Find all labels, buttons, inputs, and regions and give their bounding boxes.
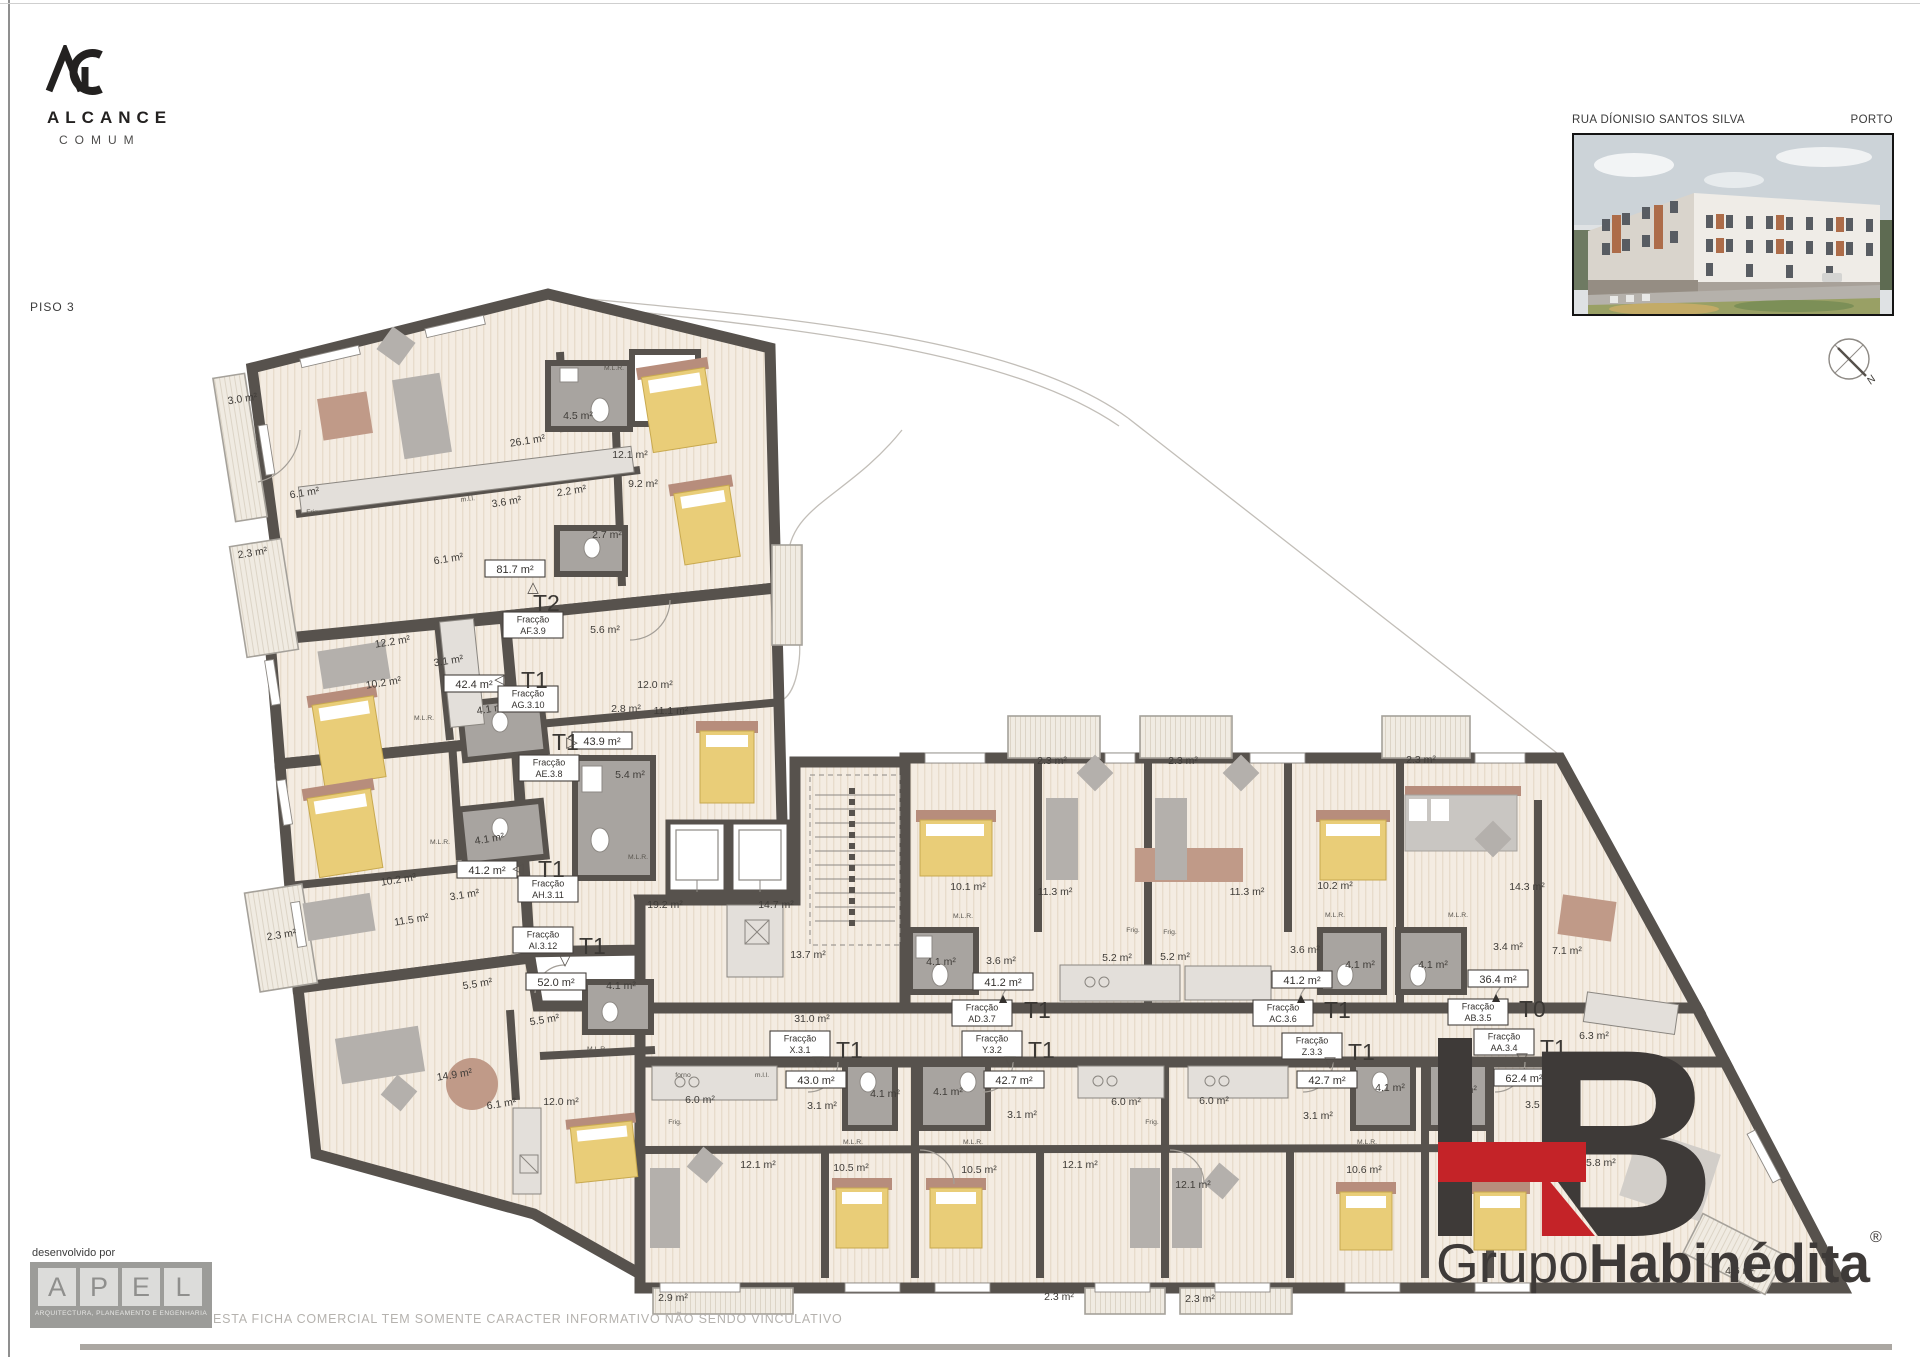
room-area-label: 14.7 m² <box>758 899 794 911</box>
room-area-label: 10.5 m² <box>961 1164 997 1176</box>
fraccao-word: Fracção <box>1488 1032 1521 1042</box>
unit-type-label: T1 <box>1324 997 1351 1023</box>
unit-area-value: 41.2 m² <box>1283 975 1321 987</box>
room-area-label: 10.6 m² <box>1346 1164 1382 1176</box>
room-area-label: 12.1 m² <box>740 1159 776 1171</box>
fraccao-word: Fracção <box>784 1034 817 1044</box>
unit-area-value: 41.2 m² <box>984 977 1022 989</box>
appliance-label: Frig. <box>668 1119 682 1126</box>
disclaimer-text: ESTA FICHA COMERCIAL TEM SOMENTE CARACTE… <box>213 1312 843 1326</box>
fraccao-word: Fracção <box>966 1003 999 1013</box>
unit-type-label: T1 <box>1024 997 1051 1023</box>
unit-type-label: T1 <box>538 856 565 882</box>
appliance-label: M.L.R. <box>604 365 624 372</box>
room-area-label: 2.3 m² <box>1168 755 1198 767</box>
unit-area-value: 42.7 m² <box>1308 1075 1346 1087</box>
fraccao-word: Fracção <box>1296 1036 1329 1046</box>
elevators <box>668 822 789 892</box>
unit-area-value: 43.9 m² <box>583 736 621 748</box>
appliance-label: M.L.R. <box>1357 1139 1377 1146</box>
room-area-label: 12.1 m² <box>1062 1159 1098 1171</box>
compass-icon: N <box>1829 339 1879 387</box>
floorplan-drawing: N 3.0 m²26.1 m²4.5 m²12.1 m²6.1 m²3.6 m²… <box>0 0 1920 1357</box>
unit-entrance-arrow: △ <box>527 579 539 596</box>
apel-letter-l: L <box>164 1268 202 1306</box>
fraccao-word: Fracção <box>533 758 566 768</box>
appliance-label: Frig. <box>1145 1119 1159 1126</box>
room-area-label: 2.3 m² <box>1406 754 1436 766</box>
unit-entrance-arrow: ◁ <box>494 671 506 688</box>
unit-area-value: 36.4 m² <box>1479 974 1517 986</box>
apel-letter-p: P <box>80 1268 118 1306</box>
room-area-label: 6.0 m² <box>1199 1095 1229 1107</box>
room-area-label: 5.2 m² <box>1102 952 1132 964</box>
unit-entrance-arrow: ▲ <box>996 990 1010 1006</box>
appliance-label: m.l.l. <box>755 1072 769 1079</box>
room-area-label: 4.1 m² <box>933 1086 963 1098</box>
unit-entrance-arrow: ▽ <box>812 1053 824 1070</box>
room-area-label: 11.3 m² <box>1038 886 1073 898</box>
room-area-label: 3.4 m² <box>1493 941 1523 953</box>
room-area-label: 10.1 m² <box>950 881 986 893</box>
room-area-label: 5.6 m² <box>590 624 620 636</box>
apel-caption: ARQUITECTURA, PLANEAMENTO E ENGENHARIA <box>30 1310 212 1317</box>
appliance-label: Frig. <box>1163 929 1177 936</box>
apel-letter-a: A <box>38 1268 76 1306</box>
appliance-label: Frig. <box>1126 927 1140 934</box>
appliance-label: M.L.R. <box>963 1139 983 1146</box>
unit-area-value: 43.0 m² <box>797 1075 835 1087</box>
fraccao-code: X.3.1 <box>789 1045 810 1055</box>
room-area-label: 3.6 m² <box>986 955 1016 967</box>
fraccao-code: AB.3.5 <box>1464 1013 1491 1023</box>
room-area-label: 3.1 m² <box>1007 1109 1037 1121</box>
room-area-label: 31.0 m² <box>794 1013 830 1025</box>
fraccao-code: AI.3.12 <box>529 941 558 951</box>
appliance-label: M.L.R. <box>1448 912 1468 919</box>
room-area-label: 5.4 m² <box>615 769 645 781</box>
unit-type-label: T0 <box>1519 996 1546 1022</box>
unit-type-label: T1 <box>579 933 606 959</box>
footer-rule <box>80 1344 1892 1350</box>
room-area-label: 5.2 m² <box>1160 951 1190 963</box>
room-area-label: 2.3 m² <box>1044 1291 1074 1303</box>
unit-entrance-arrow: ▷ <box>566 734 578 751</box>
appliance-label: M.L.R. <box>587 1046 607 1053</box>
room-area-label: 7.1 m² <box>1552 945 1582 957</box>
appliance-label: M.L.R. <box>414 715 434 722</box>
room-area-label: 3.5 m² <box>1525 1099 1555 1111</box>
room-area-label: 11.1 m² <box>654 705 689 717</box>
room-area-label: 3.6 m² <box>1290 944 1320 956</box>
room-area-label: 2.3 m² <box>1185 1293 1215 1305</box>
unit-entrance-arrow: ▲ <box>1294 990 1308 1006</box>
unit-area-value: 52.0 m² <box>537 977 575 989</box>
building-walls <box>252 294 1843 1288</box>
appliance-label: M.L.R. <box>843 1139 863 1146</box>
fraccao-code: AG.3.10 <box>511 700 544 710</box>
room-area-label: 12.0 m² <box>543 1096 579 1108</box>
unit-entrance-arrow: ▽ <box>1324 1054 1336 1071</box>
appliance-label: forno <box>675 1072 691 1079</box>
room-area-label: 4.5 m² <box>563 410 593 422</box>
room-area-label: 12.1 m² <box>1175 1179 1211 1191</box>
room-area-label: 14.3 m² <box>1509 881 1545 893</box>
room-area-label: 13.7 m² <box>790 949 826 961</box>
appliance-label: Frig. <box>306 509 320 516</box>
room-area-label: 10.2 m² <box>1317 880 1353 892</box>
room-area-label: 4.1 m² <box>926 956 956 968</box>
appliance-label: M.L.R. <box>430 839 450 846</box>
apel-letter-e: E <box>122 1268 160 1306</box>
room-area-label: 19.2 m² <box>647 899 683 911</box>
commercial-floorplan-sheet: { "branding": {"monogram": "AC", "name":… <box>0 0 1920 1357</box>
unit-area-value: 41.2 m² <box>468 865 506 877</box>
unit-area-value: 42.4 m² <box>455 679 493 691</box>
room-area-label: 6.3 m² <box>1579 1030 1609 1042</box>
room-area-label: 25.8 m² <box>1580 1157 1616 1169</box>
unit-type-label: T1 <box>1540 1035 1567 1061</box>
fraccao-word: Fracção <box>527 930 560 940</box>
appliance-label: M.L.R. <box>628 854 648 861</box>
fraccao-code: Z.3.3 <box>1302 1047 1323 1057</box>
room-area-label: 3.1 m² <box>807 1100 837 1112</box>
room-area-label: 4.1 m² <box>606 980 636 992</box>
fraccao-code: AD.3.7 <box>968 1014 996 1024</box>
room-area-label: 4.1 m² <box>1418 959 1448 971</box>
fraccao-word: Fracção <box>976 1034 1009 1044</box>
room-area-label: 6.0 m² <box>685 1094 715 1106</box>
fraccao-word: Fracção <box>517 615 550 625</box>
fraccao-code: Y.3.2 <box>982 1045 1002 1055</box>
unit-type-label: T1 <box>1028 1037 1055 1063</box>
room-area-label: 11.3 m² <box>1230 886 1265 898</box>
apel-architecture-logo: A P E L ARQUITECTURA, PLANEAMENTO E ENGE… <box>30 1262 212 1328</box>
room-area-label: 9.2 m² <box>628 478 658 490</box>
fraccao-code: AE.3.8 <box>535 769 562 779</box>
unit-type-label: T1 <box>836 1037 863 1063</box>
unit-entrance-arrow: ◁ <box>512 860 524 877</box>
unit-entrance-arrow: ▽ <box>559 952 571 969</box>
room-area-label: 2.3 m² <box>1037 755 1067 767</box>
fraccao-code: AC.3.6 <box>1269 1014 1297 1024</box>
unit-entrance-arrow: ▽ <box>1516 1050 1528 1067</box>
unit-entrance-arrow: ▽ <box>1004 1053 1016 1070</box>
room-area-label: 12.0 m² <box>637 679 673 691</box>
room-area-label: 10.5 m² <box>833 1162 869 1174</box>
appliance-label: M.L.R. <box>953 913 973 920</box>
unit-area-value: 42.7 m² <box>995 1075 1033 1087</box>
room-area-label: 11.8 m² <box>1473 1162 1508 1174</box>
room-area-label: 2.9 m² <box>658 1292 688 1304</box>
room-area-label: 4.1 m² <box>870 1088 900 1100</box>
appliance-label: M.L.R. <box>1325 912 1345 919</box>
unit-area-value: 62.4 m² <box>1505 1073 1543 1085</box>
unit-entrance-arrow: ▲ <box>1489 989 1503 1005</box>
room-area-label: 4.1 m² <box>1447 1084 1477 1096</box>
room-area-label: 4.6 m² <box>1725 1265 1755 1277</box>
room-area-label: 2.7 m² <box>592 529 622 541</box>
room-area-label: 6.0 m² <box>1111 1096 1141 1108</box>
room-area-label: 3.1 m² <box>1303 1110 1333 1122</box>
fraccao-code: AA.3.4 <box>1490 1043 1517 1053</box>
room-area-label: 12.1 m² <box>612 449 648 461</box>
fraccao-code: AF.3.9 <box>520 626 546 636</box>
unit-area-value: 81.7 m² <box>496 564 534 576</box>
room-area-label: 4.1 m² <box>1375 1082 1405 1094</box>
room-area-label: 4.1 m² <box>1345 959 1375 971</box>
unit-type-label: T1 <box>1348 1039 1375 1065</box>
fraccao-code: AH.3.11 <box>532 890 564 900</box>
unit-type-label: T1 <box>521 667 548 693</box>
room-area-label: 2.8 m² <box>611 703 641 715</box>
developed-by-label: desenvolvido por <box>32 1247 115 1259</box>
